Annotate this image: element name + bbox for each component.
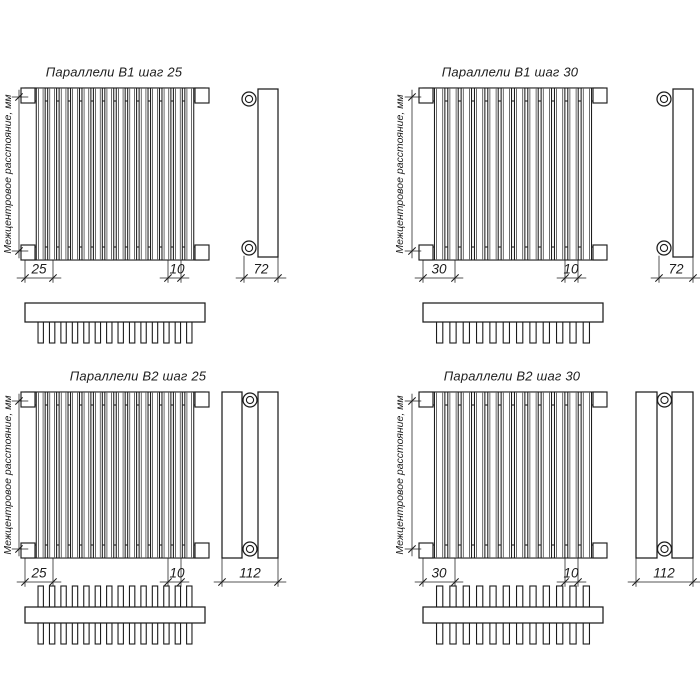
vertical-axis-label-b2-25: Межцентровое расстояние, мм <box>3 395 14 554</box>
title-b2-30: Параллели В2 шаг 30 <box>444 370 580 383</box>
title-b1-30: Параллели В1 шаг 30 <box>442 66 578 79</box>
pitch-dimension-b1-30: 30 <box>431 262 446 276</box>
vertical-axis-label-b1-25: Межцентровое расстояние, мм <box>3 94 14 253</box>
tube-width-dimension-b1-25: 10 <box>169 262 184 276</box>
pitch-dimension-b2-25: 25 <box>31 566 46 580</box>
depth-dimension-b2-30: 112 <box>653 566 675 580</box>
tube-width-dimension-b2-25: 10 <box>169 566 184 580</box>
title-b1-25: Параллели В1 шаг 25 <box>46 66 182 79</box>
pitch-dimension-b2-30: 30 <box>431 566 446 580</box>
tube-width-dimension-b1-30: 10 <box>563 262 578 276</box>
vertical-axis-label-b2-30: Межцентровое расстояние, мм <box>395 395 406 554</box>
title-b2-25: Параллели В2 шаг 25 <box>70 370 206 383</box>
technical-drawing: Параллели В1 шаг 25 Межцентровое расстоя… <box>0 0 700 700</box>
drawing-linework <box>0 0 700 700</box>
depth-dimension-b1-25: 72 <box>253 262 268 276</box>
depth-dimension-b2-25: 112 <box>239 566 261 580</box>
tube-width-dimension-b2-30: 10 <box>563 566 578 580</box>
depth-dimension-b1-30: 72 <box>668 262 683 276</box>
vertical-axis-label-b1-30: Межцентровое расстояние, мм <box>395 94 406 253</box>
pitch-dimension-b1-25: 25 <box>31 262 46 276</box>
